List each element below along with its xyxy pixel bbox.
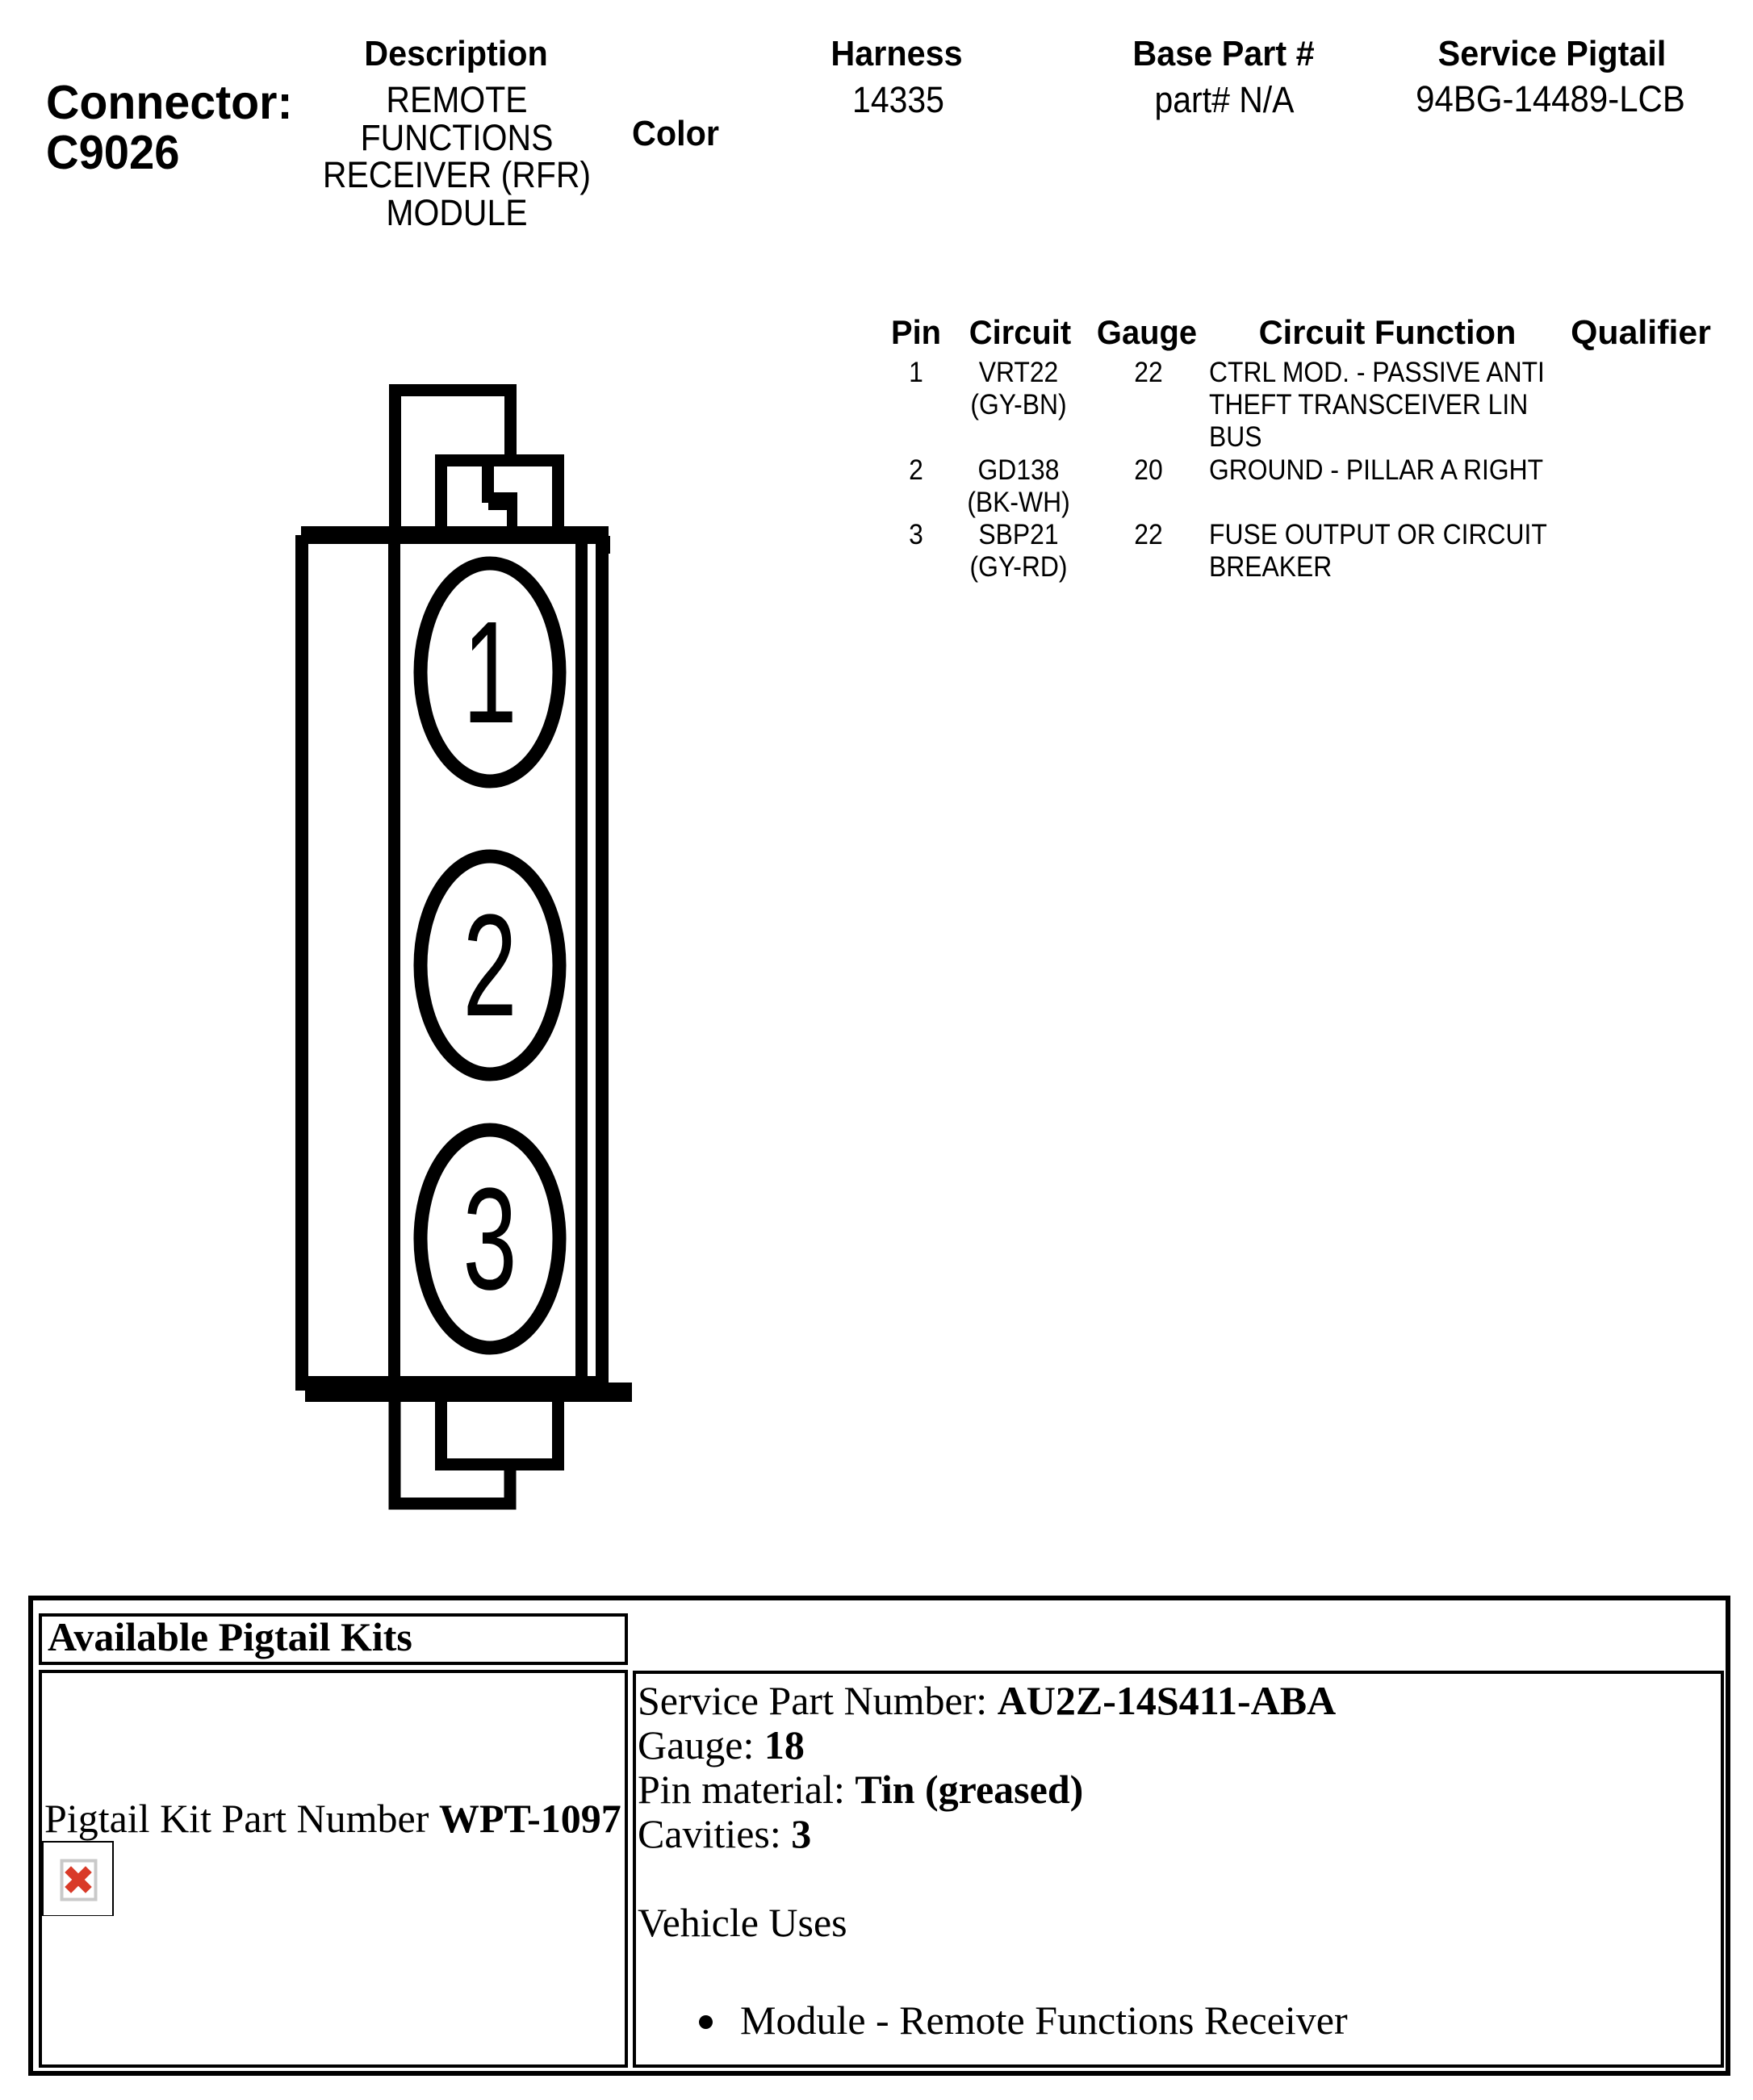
svg-text:2: 2 [462,885,517,1047]
svg-text:3: 3 [462,1158,517,1320]
svg-text:1: 1 [462,592,517,754]
